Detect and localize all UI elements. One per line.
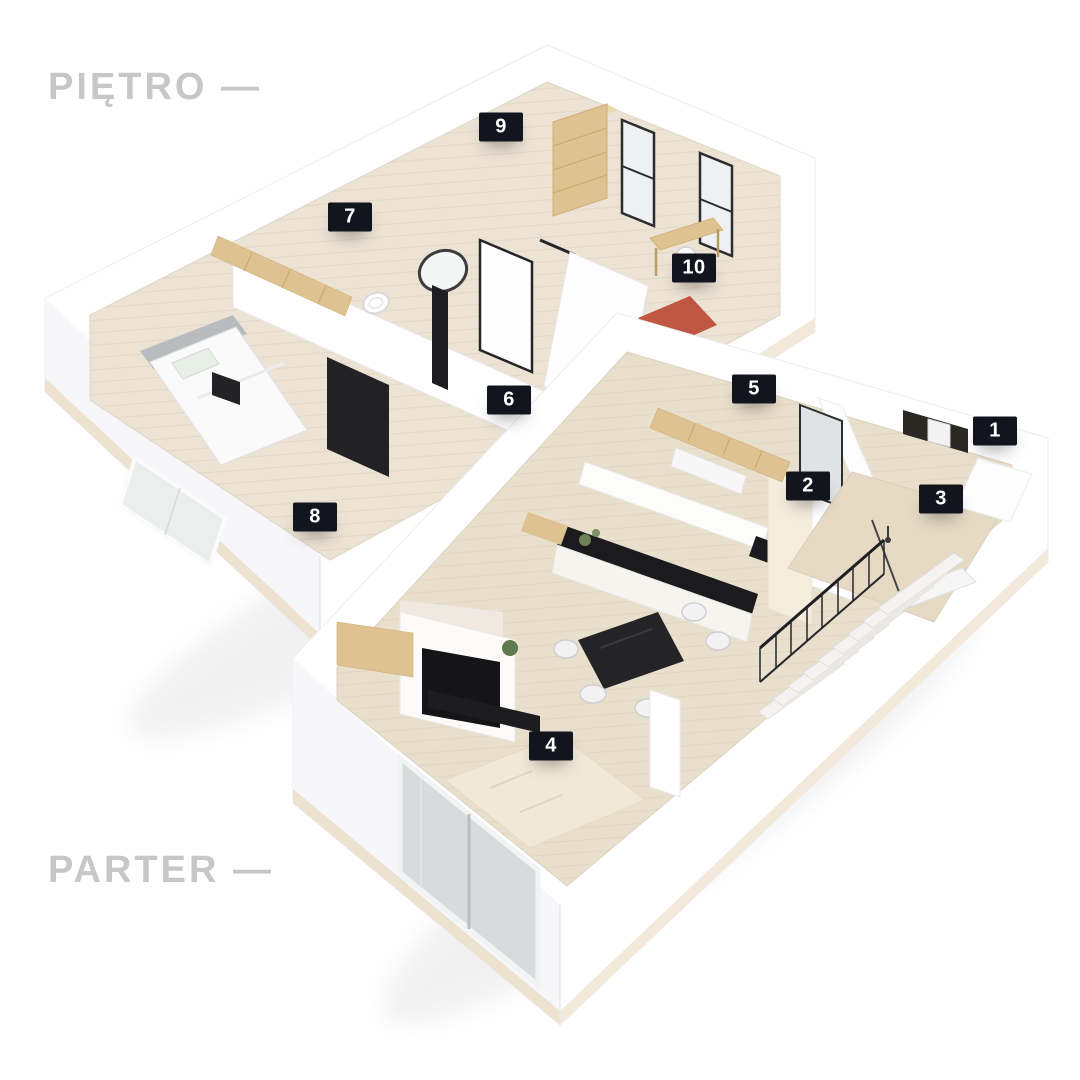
window-room9	[622, 120, 654, 226]
floorplan-3d-render	[0, 0, 1080, 1080]
upper-floor-label: PIĘTRO —	[48, 66, 262, 109]
room-marker-6-number: 6	[503, 389, 515, 412]
room-marker-1-number: 1	[989, 420, 1001, 443]
dining-chair	[682, 603, 706, 621]
room-marker-2-number: 2	[802, 475, 814, 498]
dining-chair	[706, 632, 730, 650]
room-marker-5-number: 5	[748, 378, 760, 401]
room-marker-8-number: 8	[309, 506, 321, 529]
room-marker-4-number: 4	[545, 735, 557, 758]
room-marker-5: 5	[732, 375, 776, 404]
room-marker-10: 10	[672, 254, 716, 283]
room-marker-4: 4	[529, 732, 573, 761]
room-marker-10-number: 10	[682, 257, 705, 280]
room-marker-8: 8	[293, 503, 337, 532]
room-marker-9: 9	[479, 113, 523, 142]
room-marker-1: 1	[973, 417, 1017, 446]
ground-floor-label: PARTER —	[48, 849, 274, 892]
room-marker-7: 7	[328, 203, 372, 232]
hallway-door	[480, 240, 532, 372]
dining-chair	[554, 640, 578, 658]
room-marker-3-number: 3	[935, 488, 947, 511]
kitchen-plant	[579, 534, 591, 546]
structural-column	[650, 690, 680, 797]
door-frame	[432, 285, 448, 390]
room-marker-7-number: 7	[344, 206, 356, 229]
room-marker-6: 6	[487, 386, 531, 415]
room-marker-3: 3	[919, 485, 963, 514]
plant	[502, 640, 518, 656]
room-marker-2: 2	[786, 472, 830, 501]
dining-chair	[580, 685, 606, 703]
floorplan-page: PIĘTRO — PARTER — 1 2 3 4 5 6 7 8 9 10	[0, 0, 1080, 1080]
window-room10	[700, 153, 732, 256]
room-marker-9-number: 9	[495, 116, 507, 139]
